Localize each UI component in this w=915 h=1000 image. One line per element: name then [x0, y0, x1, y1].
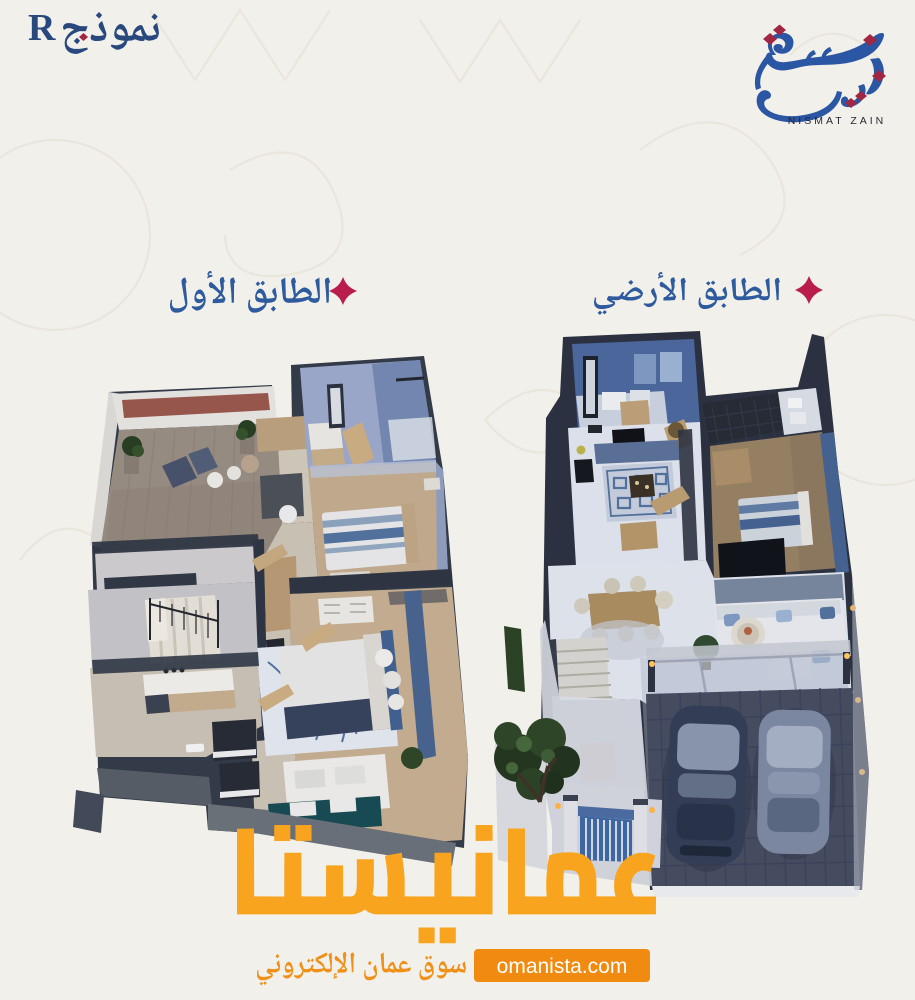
svg-text:omanista.com: omanista.com — [497, 955, 628, 978]
svg-text:NISMAT ZAIN: NISMAT ZAIN — [788, 115, 887, 127]
svg-text:R: R — [28, 7, 56, 49]
